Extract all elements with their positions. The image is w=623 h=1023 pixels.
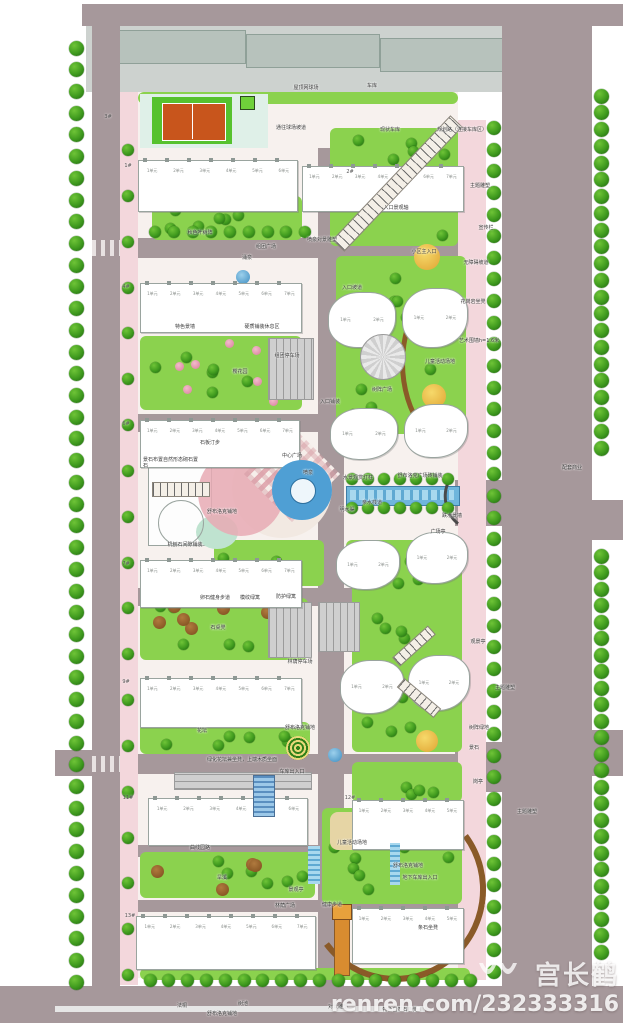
unit-label: 4单元 [378, 174, 389, 180]
brown-tree [153, 616, 166, 629]
unit-label: 1单元 [147, 291, 158, 297]
parking-lot-3 [318, 602, 360, 652]
tree [594, 549, 609, 564]
tree [487, 143, 501, 157]
tree [69, 822, 84, 837]
dome-circle [360, 334, 406, 380]
tree [200, 974, 213, 987]
map-label: 通往球场坡道 [276, 125, 306, 131]
tree [69, 62, 84, 77]
tree [219, 974, 232, 987]
tree [594, 697, 609, 712]
map-label: 舒布洛克铺地 [393, 863, 423, 869]
crosswalk-1 [92, 240, 120, 256]
unit-label: 4单元 [425, 808, 436, 814]
tree [487, 857, 501, 871]
tree [69, 453, 84, 468]
tree [69, 540, 84, 555]
tree [69, 801, 84, 816]
tree [69, 518, 84, 533]
unit-label: 4单元 [216, 291, 227, 297]
unit-label: 3单元 [193, 291, 204, 297]
map-label: 地下车库出入口 [402, 875, 437, 881]
map-label-stone-arrangement: 景石布置自然形态砌石置石 [143, 457, 201, 469]
unit-label: 1单元 [147, 168, 158, 174]
tree [487, 640, 501, 654]
tree [414, 785, 425, 796]
residential-building-1: 1单元2单元3单元4单元5单元6单元 [138, 160, 298, 212]
unit-label: 3单元 [210, 806, 221, 812]
map-label: 景石 [469, 745, 479, 751]
tennis-court [162, 103, 226, 141]
unit-label: 6单元 [289, 806, 300, 812]
map-label: 宣传栏 [478, 225, 493, 231]
map-label: 入口坡道 [342, 285, 362, 291]
crosswalk-2 [92, 756, 120, 772]
tree [487, 900, 501, 914]
unit-label: 1单元 [340, 317, 351, 323]
tree [594, 323, 609, 338]
unit-label: 1单元 [417, 555, 428, 561]
unit-label: 2单元 [373, 317, 384, 323]
tree [594, 239, 609, 254]
tree [393, 578, 404, 589]
tree [122, 969, 134, 981]
tree [594, 879, 609, 894]
unit-label: 4单元 [215, 428, 226, 434]
map-label: 舒布洛克铺地 [285, 725, 315, 731]
tree [594, 172, 609, 187]
map-label: 防护绿篱 [276, 594, 296, 600]
tree [69, 736, 84, 751]
unit-label: 5单元 [237, 428, 248, 434]
pond-2 [328, 748, 342, 762]
tree [487, 251, 501, 265]
tree [69, 497, 84, 512]
map-label: 秋色叶树阵 [187, 230, 212, 236]
unit-label: 4单元 [221, 924, 232, 930]
tree [487, 662, 501, 676]
unit-label: 2单元 [449, 680, 460, 686]
unit-label: 5单元 [246, 924, 257, 930]
unit-label: 1单元 [419, 680, 430, 686]
residential-building-9: 1单元2单元3单元4单元5单元6单元7单元 [136, 916, 316, 970]
tree [380, 623, 391, 634]
tree [69, 41, 84, 56]
tree [487, 705, 501, 719]
tree [69, 844, 84, 859]
garage-ramp [253, 775, 275, 817]
unit-label: 3单元 [200, 168, 211, 174]
map-label: 树阵广场 [372, 387, 392, 393]
tree [487, 164, 501, 178]
unit-label: 6单元 [261, 291, 272, 297]
existing-building-2 [246, 34, 380, 68]
map-label: 花坛 [197, 728, 207, 734]
tree [262, 226, 274, 238]
tree [410, 502, 422, 514]
tree [353, 135, 364, 146]
unit-label: 1单元 [347, 562, 358, 568]
right-road [502, 20, 592, 1023]
flower-tree [191, 360, 200, 369]
map-label: 屋顶网球场 [293, 85, 318, 91]
map-label: 配套商业 [562, 465, 582, 471]
tree [69, 584, 84, 599]
tree [594, 105, 609, 120]
tree [214, 213, 225, 224]
unit-label: 3单元 [403, 916, 414, 922]
tree [487, 381, 501, 395]
flower-tree [183, 385, 192, 394]
unit-label: 4单元 [226, 168, 237, 174]
tree [69, 692, 84, 707]
tree [69, 931, 84, 946]
tree [69, 757, 84, 772]
tree [242, 376, 253, 387]
tree [426, 502, 438, 514]
map-label: 主题雕塑 [470, 183, 490, 189]
unit-label: 4单元 [236, 806, 247, 812]
brown-tree [216, 883, 229, 896]
building-number: 11# [123, 795, 134, 801]
tree [594, 189, 609, 204]
unit-label: 2单元 [447, 555, 458, 561]
map-label: 舒布洛克铺地 [207, 1011, 237, 1017]
unit-label: 7单元 [284, 686, 295, 692]
tree [487, 532, 501, 546]
unit-label: 2单元 [173, 168, 184, 174]
unit-label: 4单元 [425, 916, 436, 922]
tree [594, 206, 609, 221]
tree [262, 878, 273, 889]
tree [442, 473, 454, 485]
flower-tree [225, 339, 234, 348]
building-number: 1# [124, 163, 131, 169]
map-label: 无障碍坡道 [463, 260, 488, 266]
unit-label: 1单元 [415, 428, 426, 434]
tree [487, 359, 501, 373]
tree [224, 731, 235, 742]
watermark-name: 宫长鹤 [535, 955, 619, 992]
tree [69, 953, 84, 968]
tree [294, 974, 307, 987]
tree [487, 554, 501, 568]
tree [487, 749, 501, 763]
unit-label: 7单元 [282, 428, 293, 434]
tree [594, 156, 609, 171]
tree [594, 122, 609, 137]
canal-water [350, 490, 454, 500]
tree [378, 473, 390, 485]
unit-label: 3单元 [403, 808, 414, 814]
tree [487, 619, 501, 633]
tree [594, 664, 609, 679]
map-label: 模纹绿篱 [240, 595, 260, 601]
tree [487, 727, 501, 741]
tree [122, 832, 134, 844]
unit-label: 7单元 [284, 291, 295, 297]
map-label: 卵石健身步道 [200, 595, 230, 601]
tree [594, 290, 609, 305]
unit-label: 5单元 [239, 291, 250, 297]
unit-label: 3单元 [193, 686, 204, 692]
tree [487, 922, 501, 936]
tree [428, 787, 439, 798]
tree [181, 974, 194, 987]
tree [69, 106, 84, 121]
unit-label: 5单元 [239, 568, 250, 574]
tree [487, 511, 501, 525]
map-label: 机刨石间隙铺装 [167, 542, 202, 548]
map-label: 主题雕塑 [517, 809, 537, 815]
tree [487, 878, 501, 892]
map-label: 健康步道 [322, 902, 342, 908]
tree [256, 974, 269, 987]
residential-building-8: 1单元2单元3单元4单元5单元 [352, 800, 464, 850]
unit-label: 3单元 [192, 428, 203, 434]
tree [594, 582, 609, 597]
tree [149, 226, 161, 238]
map-label: 树池 [238, 1001, 248, 1007]
unit-label: 2单元 [170, 568, 181, 574]
tree [69, 301, 84, 316]
tree [594, 390, 609, 405]
tree [162, 974, 175, 987]
tree [69, 627, 84, 642]
unit-label: 5单元 [447, 808, 458, 814]
map-label: 旱溪 [217, 875, 227, 881]
tree [487, 489, 501, 503]
tree [394, 502, 406, 514]
map-label: 喷泉对景雕塑 [307, 237, 337, 243]
building-number: 9# [122, 679, 129, 685]
unit-label: 2单元 [170, 428, 181, 434]
map-label: 樱花园 [232, 369, 247, 375]
unit-label: 1单元 [351, 684, 362, 690]
unit-label: 2单元 [170, 291, 181, 297]
map-label: 儿童活动场地 [337, 840, 367, 846]
map-label: 硬质铺装休息区 [244, 324, 279, 330]
map-label: 入口景观轴 [383, 205, 408, 211]
tree [594, 928, 609, 943]
tree [69, 866, 84, 881]
unit-label: 7单元 [284, 568, 295, 574]
tree [594, 273, 609, 288]
unit-label: 5单元 [447, 916, 458, 922]
parking-lot-1 [268, 338, 314, 400]
building-number: 13# [125, 913, 136, 919]
tree [594, 357, 609, 372]
map-label: 绿化花坛兼坐凳，上端木质坐面 [207, 757, 277, 763]
tree [243, 641, 254, 652]
unit-label: 2单元 [183, 806, 194, 812]
tree [487, 575, 501, 589]
map-label: 中心广场 [282, 453, 302, 459]
tree [487, 121, 501, 135]
residential-building-6: 1单元2单元3单元4单元5单元6单元7单元 [140, 678, 302, 728]
tree [168, 226, 180, 238]
building-number: 12# [345, 795, 356, 801]
tree [122, 694, 134, 706]
map-label: 涌泉 [242, 255, 252, 261]
tree [122, 740, 134, 752]
tree [594, 796, 609, 811]
tree [69, 975, 84, 990]
map-label: 石板汀步 [200, 440, 220, 446]
spiral-feature [286, 736, 310, 760]
unit-label: 1单元 [144, 924, 155, 930]
tree [69, 366, 84, 381]
tree [487, 424, 501, 438]
watermark: 宫长鹤 renren.com/232333316 [331, 955, 619, 1017]
parking-lot-2 [268, 602, 312, 658]
sunken-circle [158, 500, 204, 546]
tree [69, 562, 84, 577]
unit-label: 5单元 [252, 168, 263, 174]
brown-tree [249, 859, 262, 872]
building-number: 7# [122, 561, 129, 567]
unit-label: 1单元 [147, 428, 158, 434]
brown-tree [151, 865, 164, 878]
tree [594, 714, 609, 729]
building-number: 4# [122, 284, 129, 290]
map-label: 车库出入口 [279, 769, 304, 775]
tree [487, 316, 501, 330]
unit-label: 2单元 [378, 562, 389, 568]
tree [69, 84, 84, 99]
map-label: 儿童活动场地 [425, 359, 455, 365]
tree [594, 615, 609, 630]
unit-label: 2单元 [446, 428, 457, 434]
unit-label: 1单元 [359, 808, 370, 814]
tree [594, 763, 609, 778]
unit-label: 1单元 [157, 806, 168, 812]
existing-building-3 [380, 38, 512, 72]
map-label: 明水渠 [339, 507, 354, 513]
tree [69, 127, 84, 142]
tree [487, 792, 501, 806]
unit-label: 2单元 [446, 315, 457, 321]
map-label: 舒布洛克铺地 [207, 509, 237, 515]
map-label: 小区主入口 [411, 249, 436, 255]
east-flare-1 [592, 500, 623, 540]
tree [213, 856, 224, 867]
tree [594, 862, 609, 877]
existing-building-1 [112, 30, 246, 64]
tree [69, 649, 84, 664]
flower-tree [253, 377, 262, 386]
unit-label: 7单元 [446, 174, 457, 180]
map-label: 石桌凳 [210, 625, 225, 631]
playground-1 [414, 244, 440, 270]
unit-label: 1单元 [414, 315, 425, 321]
tennis-court-net-line [192, 103, 193, 139]
tree [122, 465, 134, 477]
unit-label: 3单元 [195, 924, 206, 930]
left-sidewalk [120, 92, 138, 985]
tree [594, 306, 609, 321]
map-label: 入口铺装 [320, 399, 340, 405]
tree [238, 974, 251, 987]
community-trellis [152, 482, 210, 497]
unit-label: 6单元 [272, 924, 283, 930]
map-label: 花岗岩坐凳 [460, 299, 485, 305]
unit-label: 2单元 [170, 686, 181, 692]
site-plan: 1单元2单元3单元4单元5单元6单元1单元2单元3单元4单元5单元6单元7单元1… [0, 0, 623, 1023]
tree [487, 814, 501, 828]
tree [69, 258, 84, 273]
map-label: 组团广场 [256, 244, 276, 250]
tree [69, 171, 84, 186]
watermark-logo-icon [475, 961, 529, 987]
garage-entry-square [240, 96, 255, 110]
map-label: 曲线园路 [190, 845, 210, 851]
tree [594, 648, 609, 663]
map-label: 景观亭 [288, 887, 303, 893]
tree [487, 446, 501, 460]
tree [69, 323, 84, 338]
map-label: 水景观赏灯柱 [343, 475, 373, 481]
map-label: 亲水栈道 [362, 500, 382, 506]
map-label: 特色景墙 [175, 324, 195, 330]
tree [313, 974, 326, 987]
tree [594, 730, 609, 745]
unit-label: 2单元 [375, 431, 386, 437]
tree [487, 208, 501, 222]
unit-label: 6单元 [261, 686, 272, 692]
tree [594, 424, 609, 439]
tree [594, 813, 609, 828]
map-label: 车库 [367, 83, 377, 89]
unit-label: 6单元 [423, 174, 434, 180]
tree [69, 714, 84, 729]
tree [69, 431, 84, 446]
watermark-url: renren.com/232333316 [331, 992, 619, 1017]
tree [69, 214, 84, 229]
map-label: 岗亭 [473, 779, 483, 785]
map-label: 广场亭 [430, 529, 445, 535]
map-label: 规划路（连接车库区） [437, 127, 487, 133]
map-label: 林荫广场 [275, 903, 295, 909]
tree [594, 912, 609, 927]
unit-label: 1单元 [342, 431, 353, 437]
unit-label: 1单元 [309, 174, 320, 180]
tree [594, 681, 609, 696]
tree [487, 835, 501, 849]
tree [69, 410, 84, 425]
tree [69, 236, 84, 251]
tree [594, 441, 609, 456]
building-number: 2# [346, 169, 353, 175]
tree [69, 475, 84, 490]
water-strip-1 [308, 846, 320, 884]
tree [69, 605, 84, 620]
map-label: 观景亭 [470, 639, 485, 645]
tree [594, 565, 609, 580]
tree [594, 223, 609, 238]
unit-label: 1单元 [147, 568, 158, 574]
map-label: 舒布洛克广场砖铺装 [397, 473, 442, 479]
unit-label: 6单元 [260, 428, 271, 434]
unit-label: 1单元 [359, 916, 370, 922]
unit-label: 3单元 [355, 174, 366, 180]
tree [594, 747, 609, 762]
map-label: 现状车库 [380, 127, 400, 133]
map-label: 树阵绿地 [469, 725, 489, 731]
map-label: 喷泉 [303, 470, 313, 476]
unit-label: 2单元 [382, 684, 393, 690]
